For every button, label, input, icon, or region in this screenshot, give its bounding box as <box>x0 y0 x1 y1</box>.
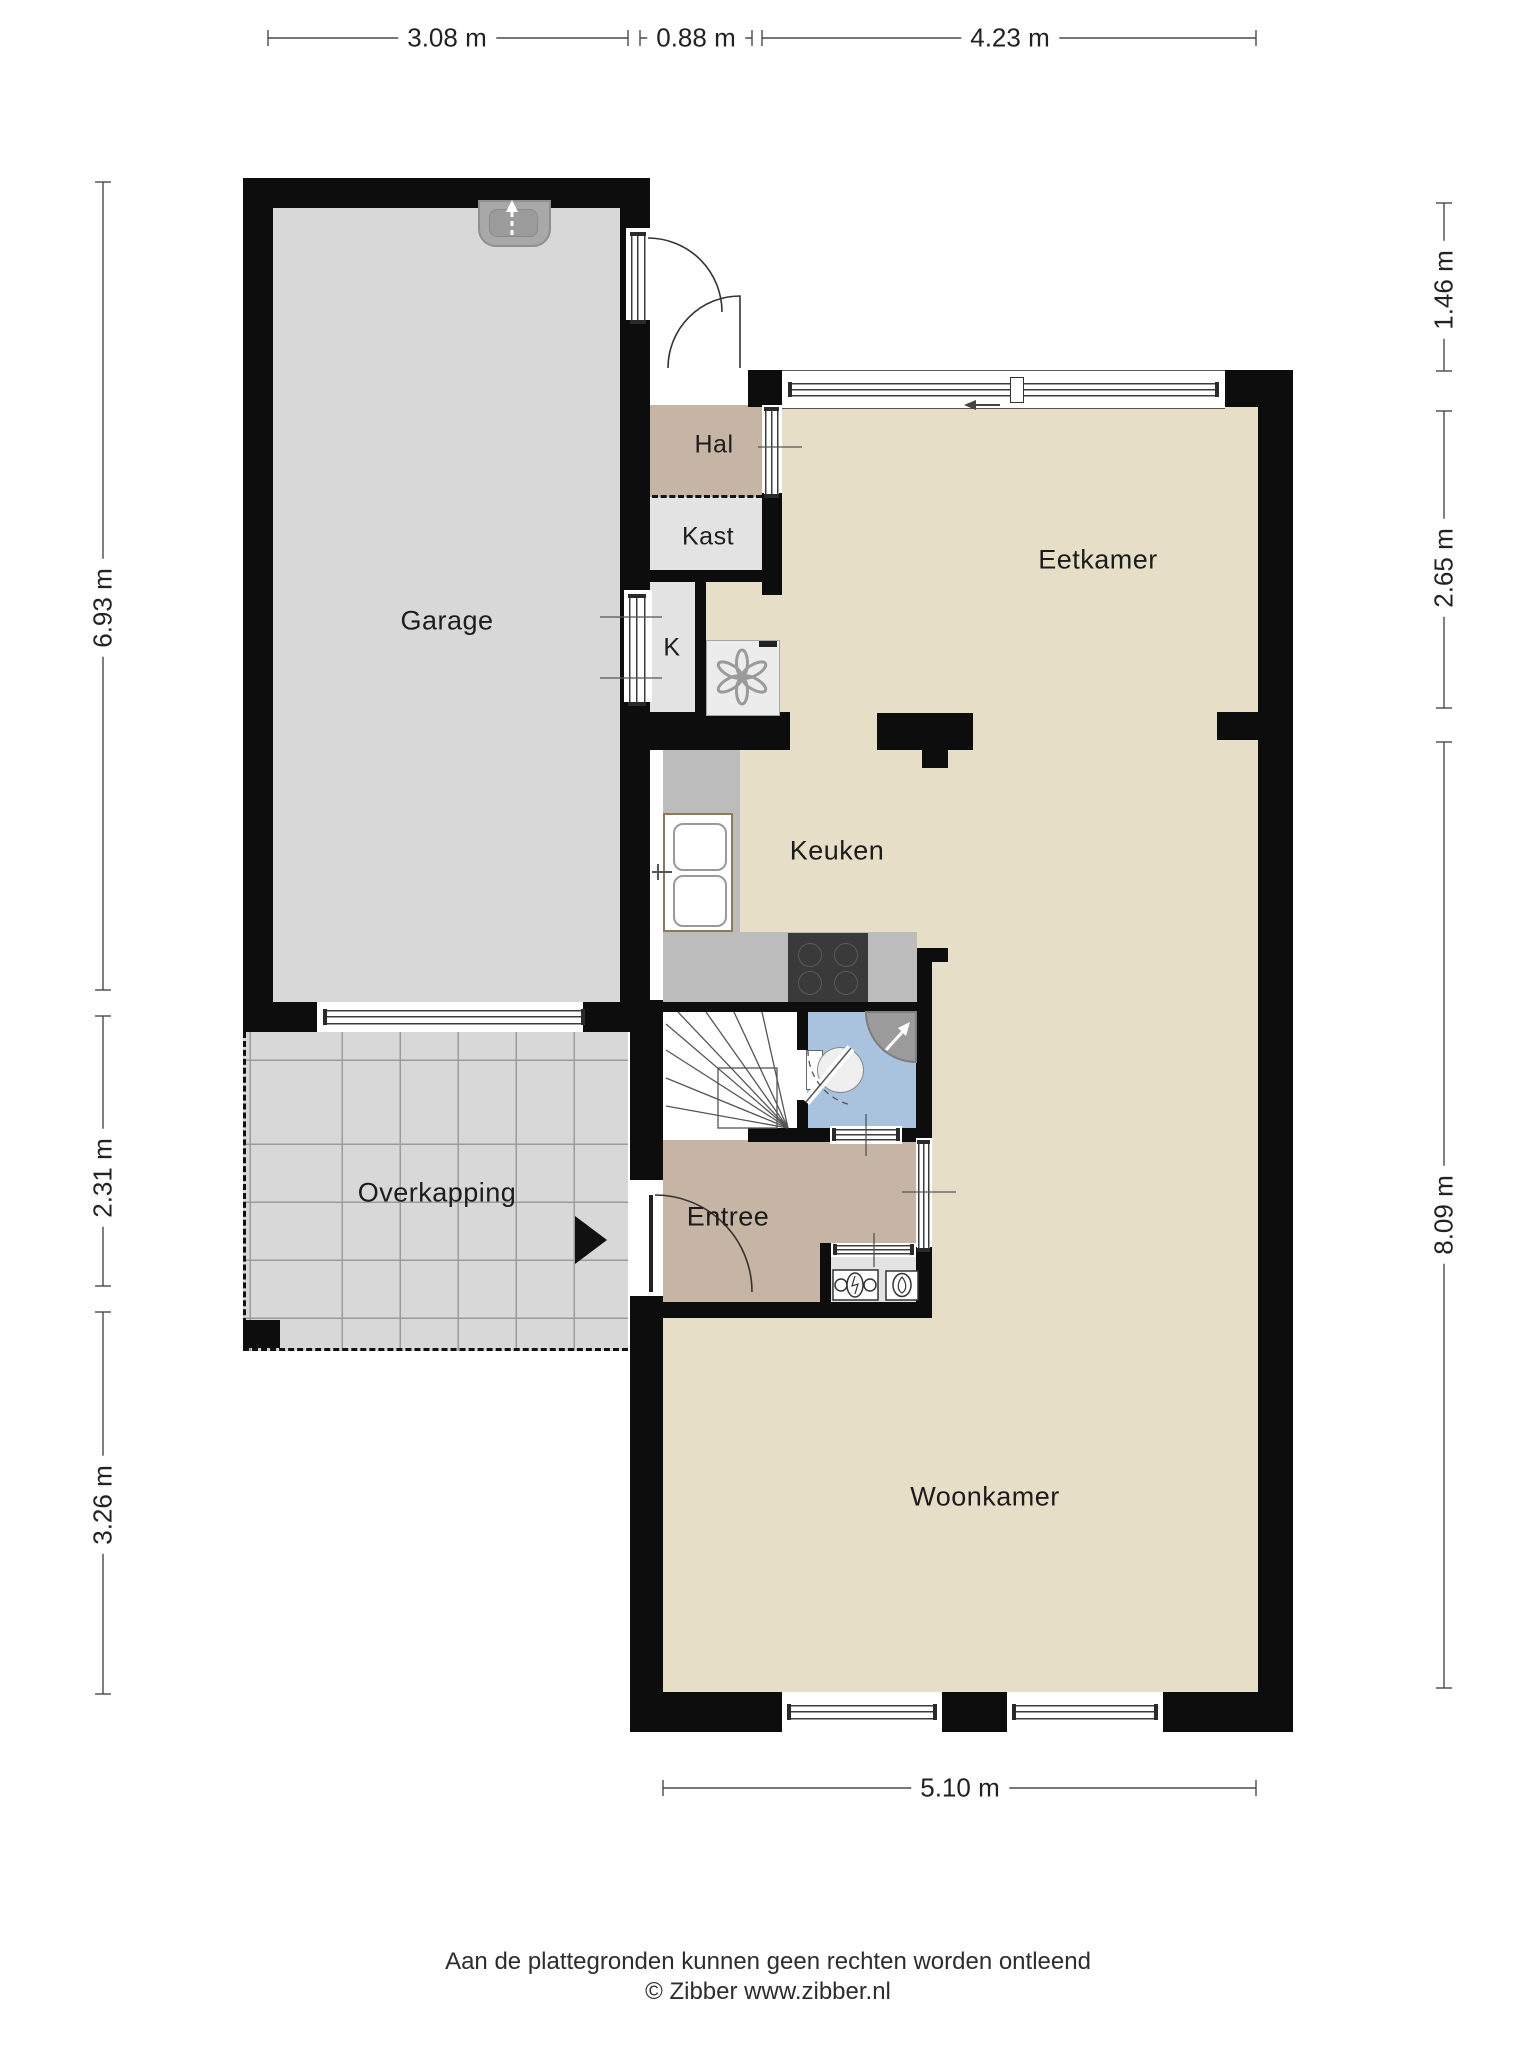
stairs-toilet-wall-bottom <box>797 1100 808 1128</box>
woonkamer-window-left <box>782 1692 942 1732</box>
dim-left-2: 2.31 m <box>87 1129 120 1227</box>
front-door-opening <box>630 1180 663 1296</box>
room-label-woonkamer: Woonkamer <box>910 1482 1060 1513</box>
dim-right-3: 8.09 m <box>1428 1166 1461 1264</box>
kast-bottom-wall <box>650 570 782 582</box>
garage-bottom-wall-left <box>243 1002 317 1032</box>
floorplan-page: Garage Hal Kast K Eetkamer Keuken Overka… <box>0 0 1536 2048</box>
dim-left-1: 6.93 m <box>87 559 120 657</box>
freestanding-wall-stub-leg <box>922 750 948 768</box>
alcove-transom-window <box>831 1243 916 1257</box>
room-label-entree: Entree <box>687 1202 770 1233</box>
toilet-right-wall <box>916 1012 932 1138</box>
stairs-bottom-wall <box>748 1128 830 1142</box>
dim-bottom-1: 5.10 m <box>911 1772 1009 1805</box>
right-outer-wall <box>1258 370 1293 1732</box>
garage-left-wall <box>243 178 273 1032</box>
garage-k-window <box>624 590 652 702</box>
k-right-wall <box>695 582 706 714</box>
west-wall <box>630 1012 663 1732</box>
dim-right-1: 1.46 m <box>1428 241 1461 339</box>
hal-kast-divider <box>652 495 762 498</box>
dim-top-2: 0.88 m <box>647 22 745 55</box>
room-label-eetkamer: Eetkamer <box>1038 545 1158 576</box>
overkapping-post <box>243 1320 280 1348</box>
footer-credit: © Zibber www.zibber.nl <box>0 1978 1536 2006</box>
room-label-keuken: Keuken <box>790 836 885 867</box>
woonkamer-window-right <box>1007 1692 1163 1732</box>
corridor-floor <box>932 1012 1258 1318</box>
hal-eetkamer-window <box>762 405 782 493</box>
eetkamer-window <box>782 370 1225 409</box>
stairs-toilet-wall-top <box>797 1012 808 1050</box>
garage-washbasin <box>478 200 551 247</box>
room-label-k: K <box>663 634 680 663</box>
entree-woonkamer-window <box>916 1138 932 1247</box>
garage-top-wall <box>243 178 650 208</box>
freestanding-wall-stub <box>877 713 973 750</box>
woonkamer-bottom-wall <box>630 1692 1293 1732</box>
entree-bottom-wall <box>630 1302 932 1318</box>
ventilation-unit <box>706 640 780 716</box>
room-label-garage: Garage <box>400 606 493 637</box>
room-label-overkapping: Overkapping <box>358 1178 517 1209</box>
dim-top-1: 3.08 m <box>398 22 496 55</box>
counter-end-wall-stub <box>932 948 948 962</box>
toilet-entree-window <box>830 1126 902 1144</box>
eetkamer-floor-left-strip <box>706 582 1258 714</box>
right-wall-pier <box>1217 712 1258 740</box>
footer-disclaimer: Aan de plattegronden kunnen geen rechten… <box>0 1948 1536 1976</box>
porch-door-arc <box>648 238 722 312</box>
toilet-bowl <box>817 1047 864 1093</box>
dim-left-3: 3.26 m <box>87 1456 120 1554</box>
stairs-floor <box>663 1012 797 1128</box>
dim-top-3: 4.23 m <box>961 22 1059 55</box>
kitchen-top-wall <box>650 712 790 750</box>
porch-sidelight-window <box>626 228 652 320</box>
stove <box>788 933 868 1002</box>
hal-door-arc <box>668 296 740 368</box>
room-label-kast: Kast <box>682 523 734 552</box>
garage-door <box>317 1002 583 1032</box>
alcove-left-wall <box>820 1243 831 1302</box>
kitchen-sink <box>663 813 733 932</box>
ventilation-unit-mark <box>759 641 777 647</box>
dim-right-2: 2.65 m <box>1428 519 1461 617</box>
room-label-hal: Hal <box>694 431 733 460</box>
